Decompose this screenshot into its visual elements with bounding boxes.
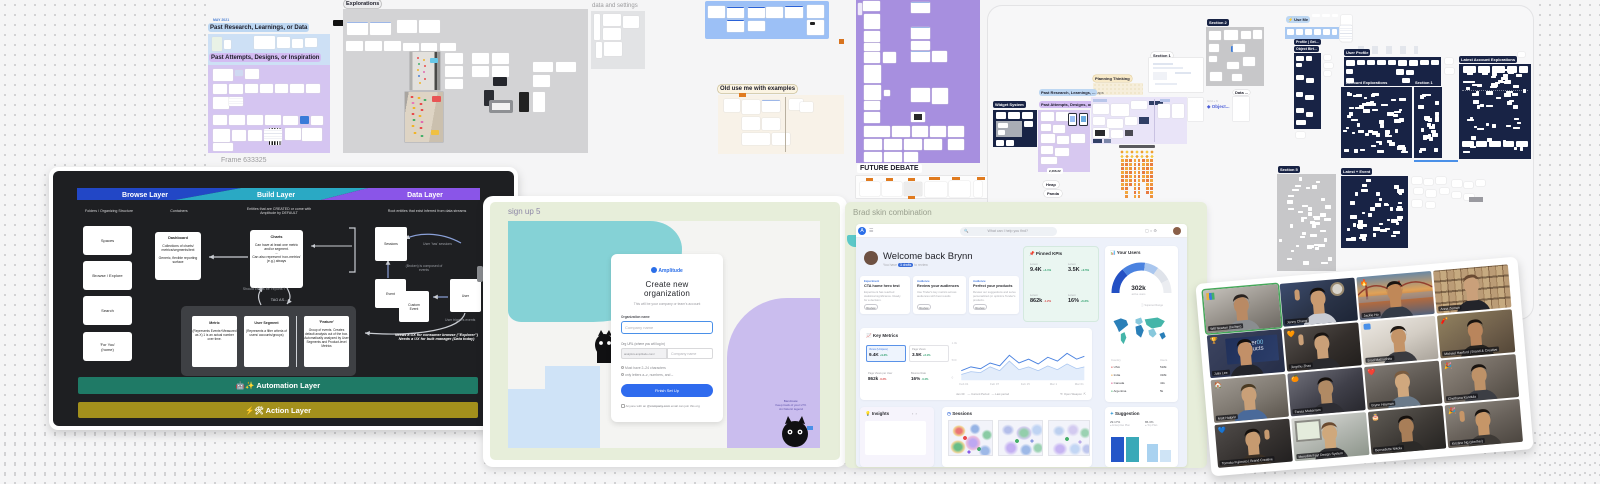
svg-text:Mar 01: Mar 01 <box>1075 382 1084 386</box>
svg-text:Mar 1: Mar 1 <box>1050 382 1058 386</box>
svg-text:Feb 15: Feb 15 <box>1021 382 1030 386</box>
svg-text:0: 0 <box>952 375 954 379</box>
svg-text:1.0k: 1.0k <box>952 341 958 345</box>
svg-text:Browse Layer: Browse Layer <box>122 192 168 199</box>
svg-text:Feb 01: Feb 01 <box>959 382 968 386</box>
svg-text:Build Layer: Build Layer <box>257 192 295 199</box>
svg-text:Feb 07: Feb 07 <box>990 382 999 386</box>
svg-text:500: 500 <box>952 358 957 362</box>
svg-text:Data Layer: Data Layer <box>407 192 443 199</box>
